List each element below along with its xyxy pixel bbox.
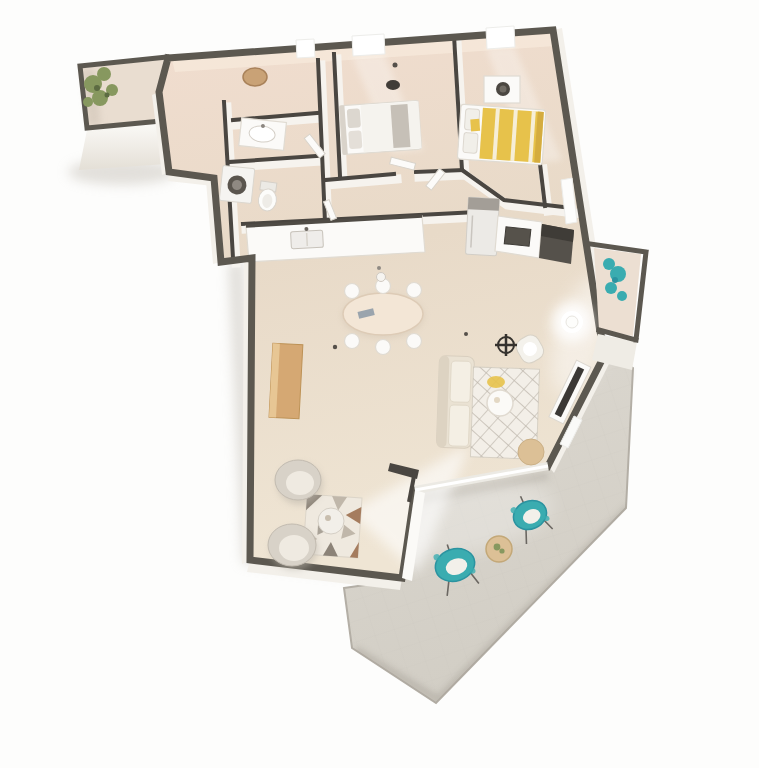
- fridge: [466, 197, 500, 256]
- ceiling-light: [386, 80, 400, 90]
- dining-chair: [407, 334, 422, 349]
- lamp-top: [566, 316, 578, 328]
- round-mirror-glass: [500, 86, 507, 93]
- oval-mirror: [243, 68, 267, 86]
- pillow: [463, 132, 478, 153]
- pillow: [347, 108, 361, 128]
- side-table: [318, 508, 344, 534]
- balcony-floor: [594, 248, 641, 336]
- rug-yellow-accent: [487, 376, 505, 388]
- pillow: [348, 130, 362, 149]
- balcony-right: [590, 244, 646, 370]
- dining-chair: [345, 334, 360, 349]
- chair-cushion: [279, 535, 309, 561]
- chair-cushion: [286, 471, 314, 495]
- floorplan-svg: [0, 0, 759, 768]
- washbasin-counter: [239, 118, 287, 151]
- side-table-deco: [325, 515, 331, 521]
- fridge-top: [468, 197, 500, 211]
- dining-chair: [376, 340, 391, 355]
- washing-machine: [219, 165, 254, 203]
- wooden-sideboard: [269, 343, 303, 418]
- coffee-table: [487, 390, 513, 416]
- accent-pillow: [470, 119, 480, 132]
- window: [352, 34, 385, 56]
- dining-table: [343, 293, 423, 335]
- dark-basin: [504, 227, 531, 247]
- window: [296, 39, 315, 58]
- table-deco: [494, 397, 500, 403]
- dining-chair: [407, 283, 422, 298]
- double-bed-yellow: [457, 104, 546, 165]
- ceiling-dot: [393, 63, 398, 68]
- dresser-with-mirror: [484, 76, 520, 103]
- dining-chair: [345, 284, 360, 299]
- terrace-table: [486, 536, 512, 562]
- sink-dark: [504, 227, 531, 247]
- grey-throw: [391, 104, 411, 148]
- floor-lamp: [552, 302, 592, 342]
- rattan-pouf: [518, 439, 544, 465]
- pendant-lamp: [377, 273, 386, 282]
- double-bed-white: [339, 100, 421, 154]
- pendant-cord: [377, 266, 381, 270]
- sofa: [436, 355, 474, 448]
- floorplan-canvas: [0, 0, 759, 768]
- sofa-cushion: [450, 361, 471, 403]
- floor-dot: [333, 345, 337, 349]
- floor-dot: [464, 332, 468, 336]
- sink-divider: [307, 233, 308, 246]
- sofa-cushion: [448, 405, 469, 447]
- window: [486, 26, 515, 49]
